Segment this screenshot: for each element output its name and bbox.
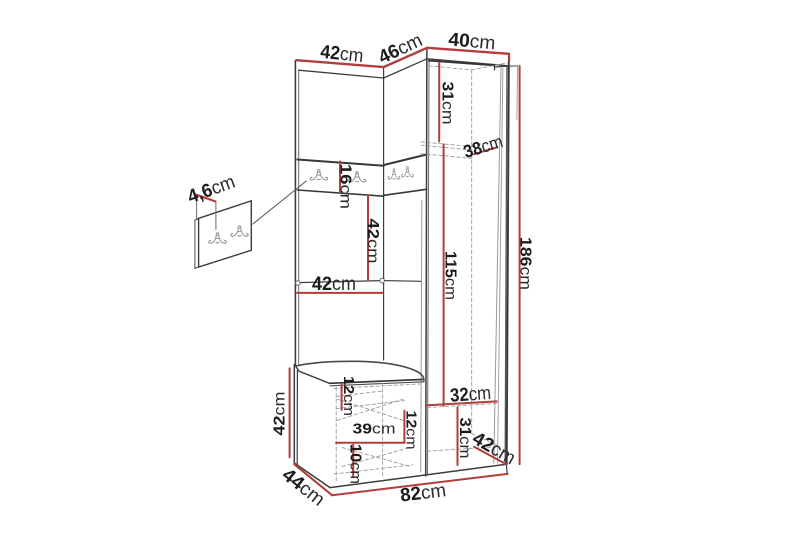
svg-text:39cm: 39cm bbox=[353, 421, 396, 438]
svg-text:40cm: 40cm bbox=[448, 29, 497, 54]
svg-text:12cm: 12cm bbox=[403, 411, 420, 450]
svg-text:42cm: 42cm bbox=[312, 274, 356, 295]
svg-text:42cm: 42cm bbox=[319, 42, 364, 67]
svg-text:16cm: 16cm bbox=[337, 164, 354, 209]
svg-text:186cm: 186cm bbox=[517, 237, 534, 290]
svg-text:115cm: 115cm bbox=[442, 251, 459, 300]
svg-text:12cm: 12cm bbox=[340, 376, 357, 416]
svg-text:42cm: 42cm bbox=[271, 392, 288, 436]
svg-text:10cm: 10cm bbox=[347, 444, 364, 484]
svg-text:31cm: 31cm bbox=[456, 418, 473, 459]
svg-text:42cm: 42cm bbox=[364, 219, 381, 264]
svg-text:31cm: 31cm bbox=[439, 82, 456, 125]
svg-text:32cm: 32cm bbox=[449, 383, 491, 407]
